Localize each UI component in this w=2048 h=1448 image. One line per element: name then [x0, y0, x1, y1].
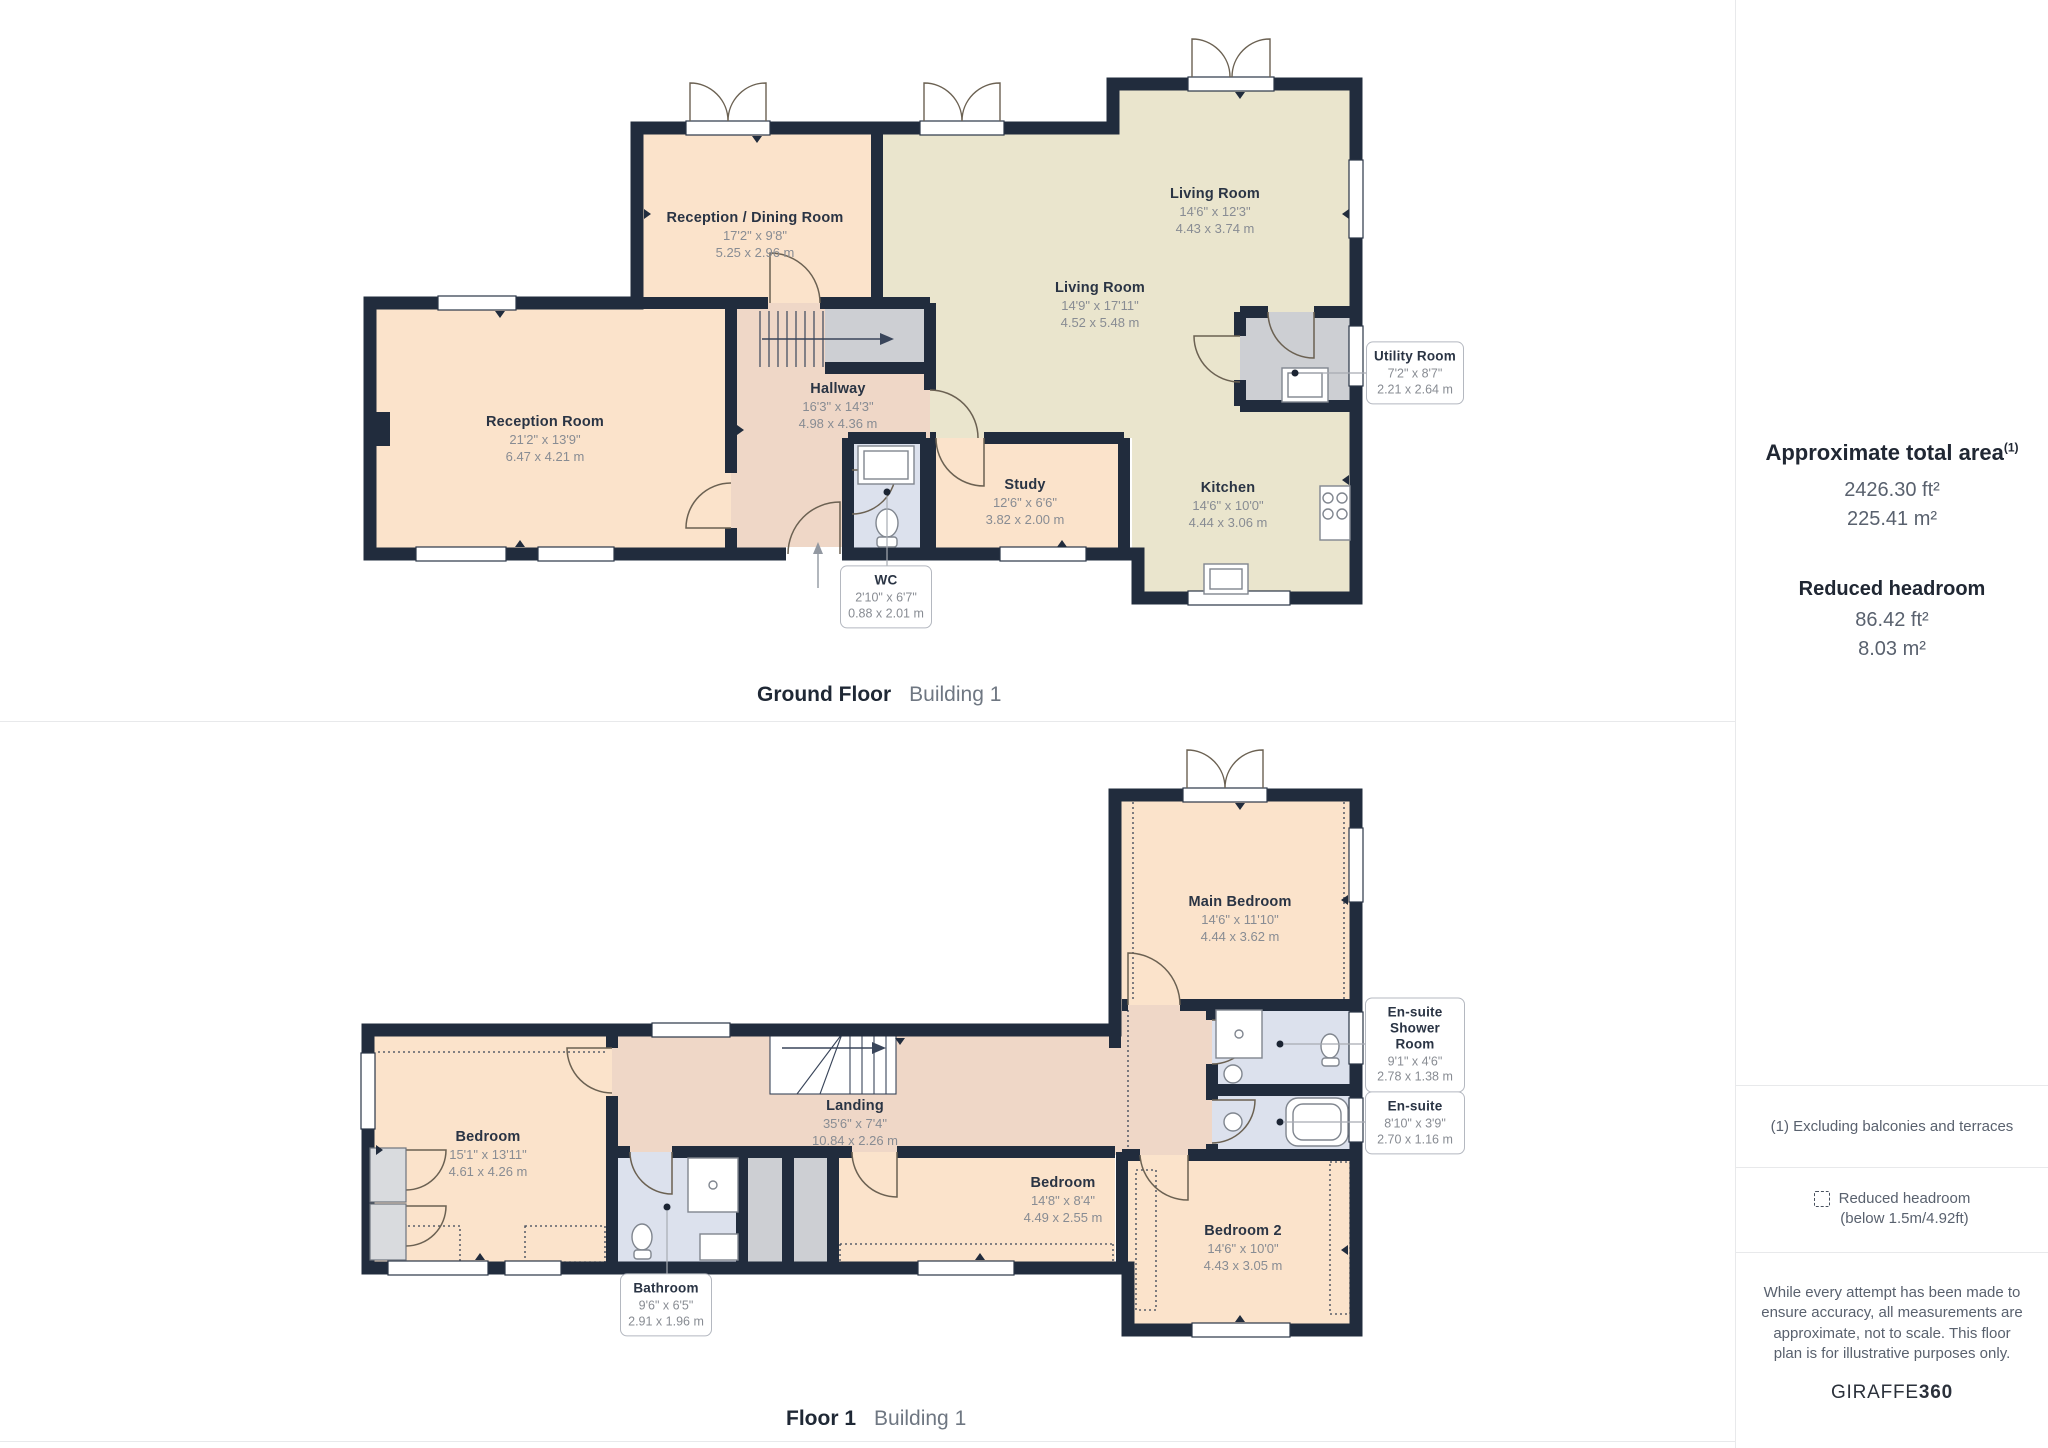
room-name: Bedroom 2 [1204, 1223, 1283, 1239]
room-dims-ft: 14'6" x 12'3" [1170, 204, 1260, 221]
room-name: Main Bedroom [1188, 894, 1291, 910]
room-dims-m: 5.25 x 2.96 m [667, 245, 844, 262]
reduced-headroom-heading: Reduced headroom [1736, 578, 2048, 601]
room-name: Bathroom [626, 1280, 706, 1296]
room-dims-m: 2.21 x 2.64 m [1372, 382, 1458, 398]
room-label-bedroom-middle: Bedroom 14'8" x 8'4" 4.49 x 2.55 m [1024, 1175, 1103, 1227]
fireplace [376, 412, 390, 446]
room-dims-m: 2.70 x 1.16 m [1371, 1132, 1459, 1148]
room-dims-m: 4.43 x 3.74 m [1170, 221, 1260, 238]
brand-suffix: 360 [1919, 1382, 1953, 1403]
legend-line-1: Reduced headroom [1839, 1189, 1971, 1209]
room-dims-ft: 7'2" x 8'7" [1372, 366, 1458, 382]
total-area-label: Approximate total area [1765, 440, 2003, 465]
room-dims-m: 10.84 x 2.26 m [812, 1133, 898, 1150]
legend-line-2: (below 1.5m/4.92ft) [1839, 1209, 1971, 1229]
room-dims-ft: 15'1" x 13'11" [449, 1147, 528, 1164]
room-dims-m: 4.43 x 3.05 m [1204, 1258, 1283, 1275]
callout-utility-room: Utility Room 7'2" x 8'7" 2.21 x 2.64 m [1366, 341, 1464, 404]
reduced-headroom-ft: 86.42 ft² [1736, 609, 2048, 632]
room-dims-m: 4.44 x 3.06 m [1189, 515, 1268, 532]
room-label-hallway: Hallway 16'3" x 14'3" 4.98 x 4.36 m [799, 381, 878, 433]
room-dims-ft: 12'6" x 6'6" [986, 495, 1065, 512]
room-label-bedroom-left: Bedroom 15'1" x 13'11" 4.61 x 4.26 m [449, 1129, 528, 1181]
room-dims-ft: 21'2" x 13'9" [486, 432, 604, 449]
floorplan-page: Reception / Dining Room 17'2" x 9'8" 5.2… [0, 0, 2048, 1448]
disclaimer-text: While every attempt has been made to ens… [1736, 1283, 2048, 1364]
floor1-caption: Floor 1Building 1 [786, 1407, 966, 1431]
room-label-reception-dining-room: Reception / Dining Room 17'2" x 9'8" 5.2… [667, 210, 844, 262]
legend-text: Reduced headroom (below 1.5m/4.92ft) [1839, 1189, 1971, 1228]
brand-name: GIRAFFE [1831, 1382, 1919, 1403]
room-dims-ft: 14'9" x 17'11" [1055, 298, 1145, 315]
panel-divider-1 [0, 721, 1735, 722]
room-dims-m: 0.88 x 2.01 m [846, 606, 926, 622]
giraffe360-logo: GIRAFFE360 [1736, 1382, 2048, 1404]
reduced-headroom-icon [1814, 1191, 1830, 1207]
reduced-headroom-m: 8.03 m² [1736, 638, 2048, 661]
footnote-marker: (1) [2004, 441, 2019, 455]
floor-caption-subtitle: Building 1 [909, 683, 1001, 706]
room-label-living-room-main: Living Room 14'9" x 17'11" 4.52 x 5.48 m [1055, 280, 1145, 332]
callout-ensuite: En-suite 8'10" x 3'9" 2.70 x 1.16 m [1365, 1091, 1465, 1154]
room-dims-ft: 35'6" x 7'4" [812, 1116, 898, 1133]
room-dims-ft: 14'6" x 10'0" [1189, 498, 1268, 515]
room-label-main-bedroom: Main Bedroom 14'6" x 11'10" 4.44 x 3.62 … [1188, 894, 1291, 946]
callout-ensuite-shower-room: En-suite Shower Room 9'1" x 4'6" 2.78 x … [1365, 997, 1465, 1092]
room-name: WC [846, 572, 926, 588]
room-dims-ft: 17'2" x 9'8" [667, 228, 844, 245]
panel-divider-2 [0, 1441, 1735, 1442]
room-dims-ft: 16'3" x 14'3" [799, 399, 878, 416]
room-dims-ft: 2'10" x 6'7" [846, 590, 926, 606]
room-label-bedroom-2: Bedroom 2 14'6" x 10'0" 4.43 x 3.05 m [1204, 1223, 1283, 1275]
footnote-text: (1) Excluding balconies and terraces [1736, 1118, 2048, 1135]
room-dims-m: 6.47 x 4.21 m [486, 449, 604, 466]
total-area-heading: Approximate total area(1) [1736, 440, 2048, 466]
room-name: En-suite Shower Room [1371, 1004, 1459, 1052]
ground-floor-caption: Ground FloorBuilding 1 [757, 683, 1001, 707]
room-name: Utility Room [1372, 348, 1458, 364]
room-label-kitchen: Kitchen 14'6" x 10'0" 4.44 x 3.06 m [1189, 480, 1268, 532]
room-dims-m: 2.91 x 1.96 m [626, 1314, 706, 1330]
callout-wc: WC 2'10" x 6'7" 0.88 x 2.01 m [840, 565, 932, 628]
floor-caption-subtitle: Building 1 [874, 1407, 966, 1430]
sidebar-divider-3 [1736, 1252, 2048, 1253]
room-label-living-room-top: Living Room 14'6" x 12'3" 4.43 x 3.74 m [1170, 186, 1260, 238]
sidebar-divider-1 [1736, 1085, 2048, 1086]
room-label-reception-room: Reception Room 21'2" x 13'9" 6.47 x 4.21… [486, 414, 604, 466]
room-dims-ft: 9'1" x 4'6" [1371, 1054, 1459, 1070]
reduced-headroom-legend: Reduced headroom (below 1.5m/4.92ft) [1736, 1189, 2048, 1228]
room-dims-m: 4.52 x 5.48 m [1055, 315, 1145, 332]
room-name: Reception Room [486, 414, 604, 430]
floor-caption-title: Floor 1 [786, 1407, 856, 1430]
room-dims-ft: 14'6" x 10'0" [1204, 1241, 1283, 1258]
room-name: Study [986, 477, 1065, 493]
room-dims-m: 4.98 x 4.36 m [799, 416, 878, 433]
room-dims-ft: 9'6" x 6'5" [626, 1298, 706, 1314]
callout-bathroom: Bathroom 9'6" x 6'5" 2.91 x 1.96 m [620, 1273, 712, 1336]
floor-caption-title: Ground Floor [757, 683, 891, 706]
room-dims-m: 4.61 x 4.26 m [449, 1164, 528, 1181]
room-dims-ft: 8'10" x 3'9" [1371, 1116, 1459, 1132]
room-dims-m: 4.44 x 3.62 m [1188, 929, 1291, 946]
stairs-floor1 [770, 1034, 896, 1094]
room-name: Bedroom [449, 1129, 528, 1145]
room-name: Living Room [1055, 280, 1145, 296]
room-name: Living Room [1170, 186, 1260, 202]
room-dims-ft: 14'6" x 11'10" [1188, 912, 1291, 929]
room-name: Hallway [799, 381, 878, 397]
room-name: Landing [812, 1098, 898, 1114]
wardrobes [370, 1148, 406, 1260]
total-area-ft: 2426.30 ft² [1736, 479, 2048, 502]
room-dims-m: 2.78 x 1.38 m [1371, 1070, 1459, 1086]
room-name: Reception / Dining Room [667, 210, 844, 226]
room-label-landing: Landing 35'6" x 7'4" 10.84 x 2.26 m [812, 1098, 898, 1150]
sidebar-divider-2 [1736, 1167, 2048, 1168]
total-area-m: 225.41 m² [1736, 508, 2048, 531]
room-dims-m: 4.49 x 2.55 m [1024, 1210, 1103, 1227]
room-name: En-suite [1371, 1098, 1459, 1114]
room-dims-ft: 14'8" x 8'4" [1024, 1193, 1103, 1210]
french-door-arcs-floor1 [1187, 750, 1263, 788]
room-name: Bedroom [1024, 1175, 1103, 1191]
room-name: Kitchen [1189, 480, 1268, 496]
room-dims-m: 3.82 x 2.00 m [986, 512, 1065, 529]
summary-sidebar: Approximate total area(1) 2426.30 ft² 22… [1735, 0, 2048, 1448]
room-label-study: Study 12'6" x 6'6" 3.82 x 2.00 m [986, 477, 1065, 529]
